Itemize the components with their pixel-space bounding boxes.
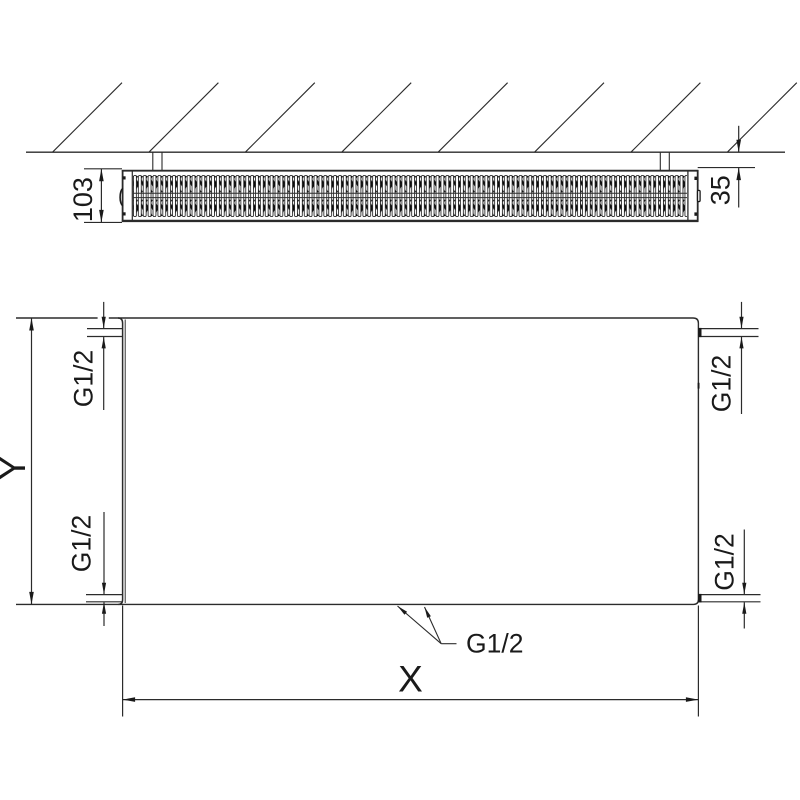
svg-text:35: 35: [706, 175, 736, 205]
svg-text:Y: Y: [0, 456, 33, 481]
svg-text:G1/2: G1/2: [707, 355, 737, 412]
svg-text:X: X: [398, 659, 423, 700]
svg-text:G1/2: G1/2: [466, 628, 523, 658]
svg-text:103: 103: [68, 177, 98, 222]
svg-text:G1/2: G1/2: [67, 515, 97, 572]
svg-text:G1/2: G1/2: [69, 350, 99, 407]
svg-text:G1/2: G1/2: [710, 533, 740, 590]
